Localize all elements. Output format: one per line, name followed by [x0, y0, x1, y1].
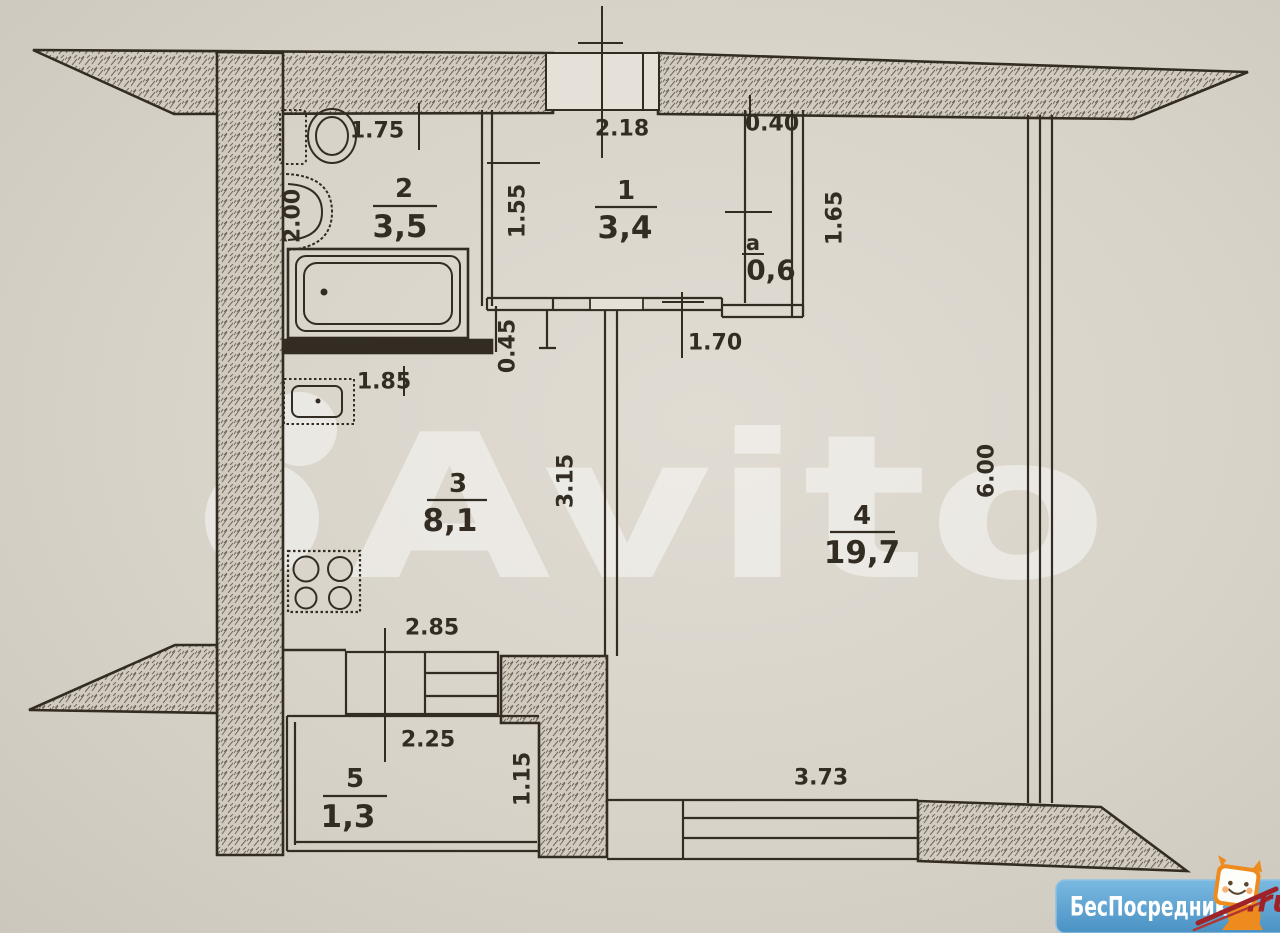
- dim-label: 2.85: [405, 616, 459, 641]
- dim-label: 3.73: [794, 766, 848, 791]
- room-area: 3,5: [373, 209, 428, 245]
- dim-label: 3.15: [554, 454, 579, 508]
- dim-label: 0.45: [496, 319, 521, 373]
- avito-watermark: Avito: [205, 392, 1108, 625]
- dim-label: 2.25: [401, 728, 455, 753]
- dim-label: 0.40: [745, 112, 799, 137]
- dim-label: 2.18: [595, 117, 649, 142]
- top-right-wall: [658, 53, 1248, 119]
- bottom-left-wall: [29, 645, 217, 713]
- logo-domain-suffix: .ru: [1246, 885, 1280, 920]
- room-label-balcony: 5 1,3: [321, 764, 387, 835]
- dim-label: 1.75: [350, 119, 404, 144]
- room-number: 4: [853, 501, 871, 531]
- balcony-door-window: [346, 652, 498, 714]
- dimension-lines: [385, 6, 772, 762]
- room-number: 5: [346, 764, 364, 794]
- bathtub-icon: [288, 249, 468, 338]
- dim-label: 1.15: [511, 752, 536, 806]
- room-label-closet: а 0,6: [742, 231, 796, 287]
- room-area: 8,1: [423, 503, 478, 539]
- room-number: 3: [449, 469, 467, 499]
- top-left-wall: [33, 50, 553, 114]
- bottom-right-wall: [918, 801, 1187, 871]
- room-label-bathroom: 2 3,5: [373, 174, 437, 245]
- floor-plan-svg: Avito: [0, 0, 1280, 933]
- dim-label: 1.70: [688, 331, 742, 356]
- toilet-icon: [280, 109, 356, 164]
- room-number: 1: [617, 176, 635, 206]
- room-area: 0,6: [746, 254, 796, 287]
- dim-label: 6.00: [975, 444, 1000, 498]
- dim-label: 1.85: [357, 370, 411, 395]
- hall-bottom-wall: [487, 298, 803, 317]
- bathroom-bottom-wall: [283, 340, 492, 353]
- room-area: 19,7: [824, 535, 901, 571]
- scanned-floor-plan: Avito: [0, 0, 1280, 933]
- left-wall-column: [217, 52, 283, 855]
- livingroom-bottom-window: [607, 800, 918, 859]
- room-number: 2: [395, 174, 413, 204]
- dim-label: 2.00: [281, 189, 306, 243]
- dim-label: 1.65: [823, 191, 848, 245]
- room-area: 1,3: [321, 799, 376, 835]
- room-label-hall: 1 3,4: [595, 176, 657, 246]
- room-area: 3,4: [598, 210, 653, 246]
- room-number: а: [746, 231, 760, 255]
- dim-label: 1.55: [506, 184, 531, 238]
